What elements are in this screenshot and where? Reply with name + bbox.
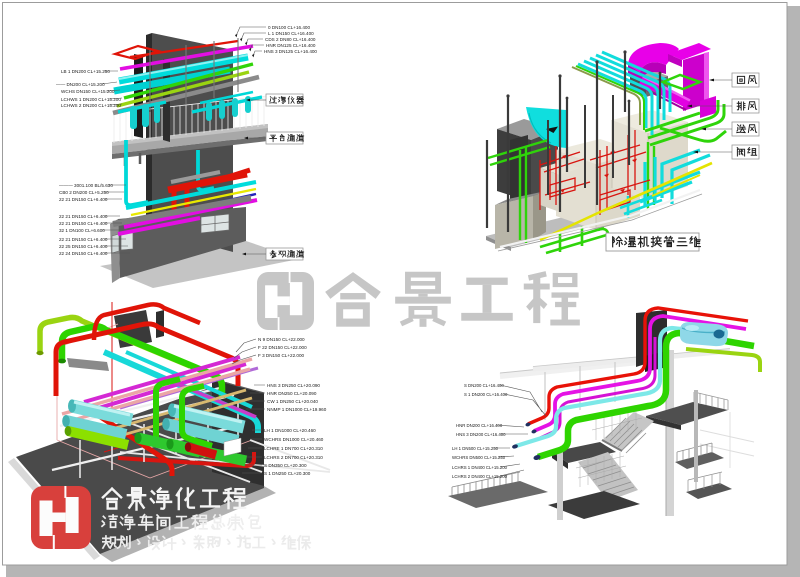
svg-text:HNR DN125 CL+16.400: HNR DN125 CL+16.400 [266, 43, 316, 48]
svg-text:HNR DN200 CL+16.400: HNR DN200 CL+16.400 [456, 423, 503, 428]
svg-text:LCHWS 1 DN200 CL+15.200: LCHWS 1 DN200 CL+15.200 [61, 97, 121, 102]
svg-text:CDS 2 DN80 CL+16.400: CDS 2 DN80 CL+16.400 [265, 37, 316, 42]
svg-text:N 9 DN150 CL+22.000: N 9 DN150 CL+22.000 [258, 337, 305, 342]
svg-text:S 1 DN250 CL+20.300: S 1 DN250 CL+20.300 [264, 471, 311, 476]
svg-text:22 25 DN150 CL+6.400: 22 25 DN150 CL+6.400 [59, 244, 108, 249]
svg-text:HNS 3 DN250 CL+20.090: HNS 3 DN250 CL+20.090 [267, 383, 320, 388]
svg-text:WCHS DN150 CL+15.200: WCHS DN150 CL+15.200 [61, 89, 115, 94]
svg-text:—— DN200 CL+15.200: —— DN200 CL+15.200 [56, 82, 105, 87]
svg-text:LB 1 DN200 CL+15.250: LB 1 DN200 CL+15.250 [61, 69, 110, 74]
svg-text:22 21 DN150 CL+6.400: 22 21 DN150 CL+6.400 [59, 237, 108, 242]
svg-text:S DN350 CL+20.300: S DN350 CL+20.300 [264, 463, 307, 468]
svg-text:LCHRE 1 DN700 CL+20.310: LCHRE 1 DN700 CL+20.310 [264, 446, 323, 451]
svg-text:F 22 DN150 CL+22.000: F 22 DN150 CL+22.000 [258, 345, 307, 350]
svg-text:WCHRS DN500 CL+15.250: WCHRS DN500 CL+15.250 [452, 455, 506, 460]
svg-text:L 1 DN150 CL+16.400: L 1 DN150 CL+16.400 [268, 31, 314, 36]
svg-text:LCHRS 2 DN400 CL+15.200: LCHRS 2 DN400 CL+15.200 [452, 474, 508, 479]
svg-text:NNMP 1 DN1000 CL+19.960: NNMP 1 DN1000 CL+19.960 [267, 407, 327, 412]
svg-text:CB0 2 DN200 CL+5.250: CB0 2 DN200 CL+5.250 [59, 190, 109, 195]
svg-text:LH 1 DN500 CL+15.250: LH 1 DN500 CL+15.250 [452, 446, 499, 451]
svg-text:0 DN100 CL+16.400: 0 DN100 CL+16.400 [268, 25, 310, 30]
svg-text:HNR DN250 CL+20.090: HNR DN250 CL+20.090 [267, 391, 317, 396]
svg-text:22 21 DN150 CL+6.400: 22 21 DN150 CL+6.400 [59, 197, 108, 202]
svg-text:22 21 DN150 CL+6.400: 22 21 DN150 CL+6.400 [59, 214, 108, 219]
svg-text:LCHWS 2 DN200 CL+15.200: LCHWS 2 DN200 CL+15.200 [61, 103, 121, 108]
svg-text:S 1 DN200 CL+16.400: S 1 DN200 CL+16.400 [464, 392, 508, 397]
svg-text:32 1 DN100 CL+6.600: 32 1 DN100 CL+6.600 [59, 228, 105, 233]
svg-text:S DN200 CL+16.400: S DN200 CL+16.400 [464, 383, 504, 388]
svg-text:F 3 DN150 CL+22.000: F 3 DN150 CL+22.000 [258, 353, 305, 358]
svg-text:HNS 3 DN200 CL+16.400: HNS 3 DN200 CL+16.400 [456, 432, 506, 437]
svg-text:WCHRS DN1000 CL+20.460: WCHRS DN1000 CL+20.460 [264, 437, 324, 442]
svg-text:22 24 DN150 CL+6.400: 22 24 DN150 CL+6.400 [59, 251, 108, 256]
svg-text:CW 1 DN250 CL+20.040: CW 1 DN250 CL+20.040 [267, 399, 318, 404]
svg-text:LH 1 DN1000 CL+20.460: LH 1 DN1000 CL+20.460 [264, 428, 316, 433]
svg-text:22 21 DN150 CL+6.400: 22 21 DN150 CL+6.400 [59, 221, 108, 226]
svg-text:——— 3001.100 BL/5.630: ——— 3001.100 BL/5.630 [59, 183, 113, 188]
svg-text:LCHRS 2 DN700 CL+20.310: LCHRS 2 DN700 CL+20.310 [264, 455, 323, 460]
svg-text:HNS 3 DN125 CL+16.400: HNS 3 DN125 CL+16.400 [264, 49, 317, 54]
svg-text:LCHRS 1 DN400 CL+15.200: LCHRS 1 DN400 CL+15.200 [452, 465, 508, 470]
